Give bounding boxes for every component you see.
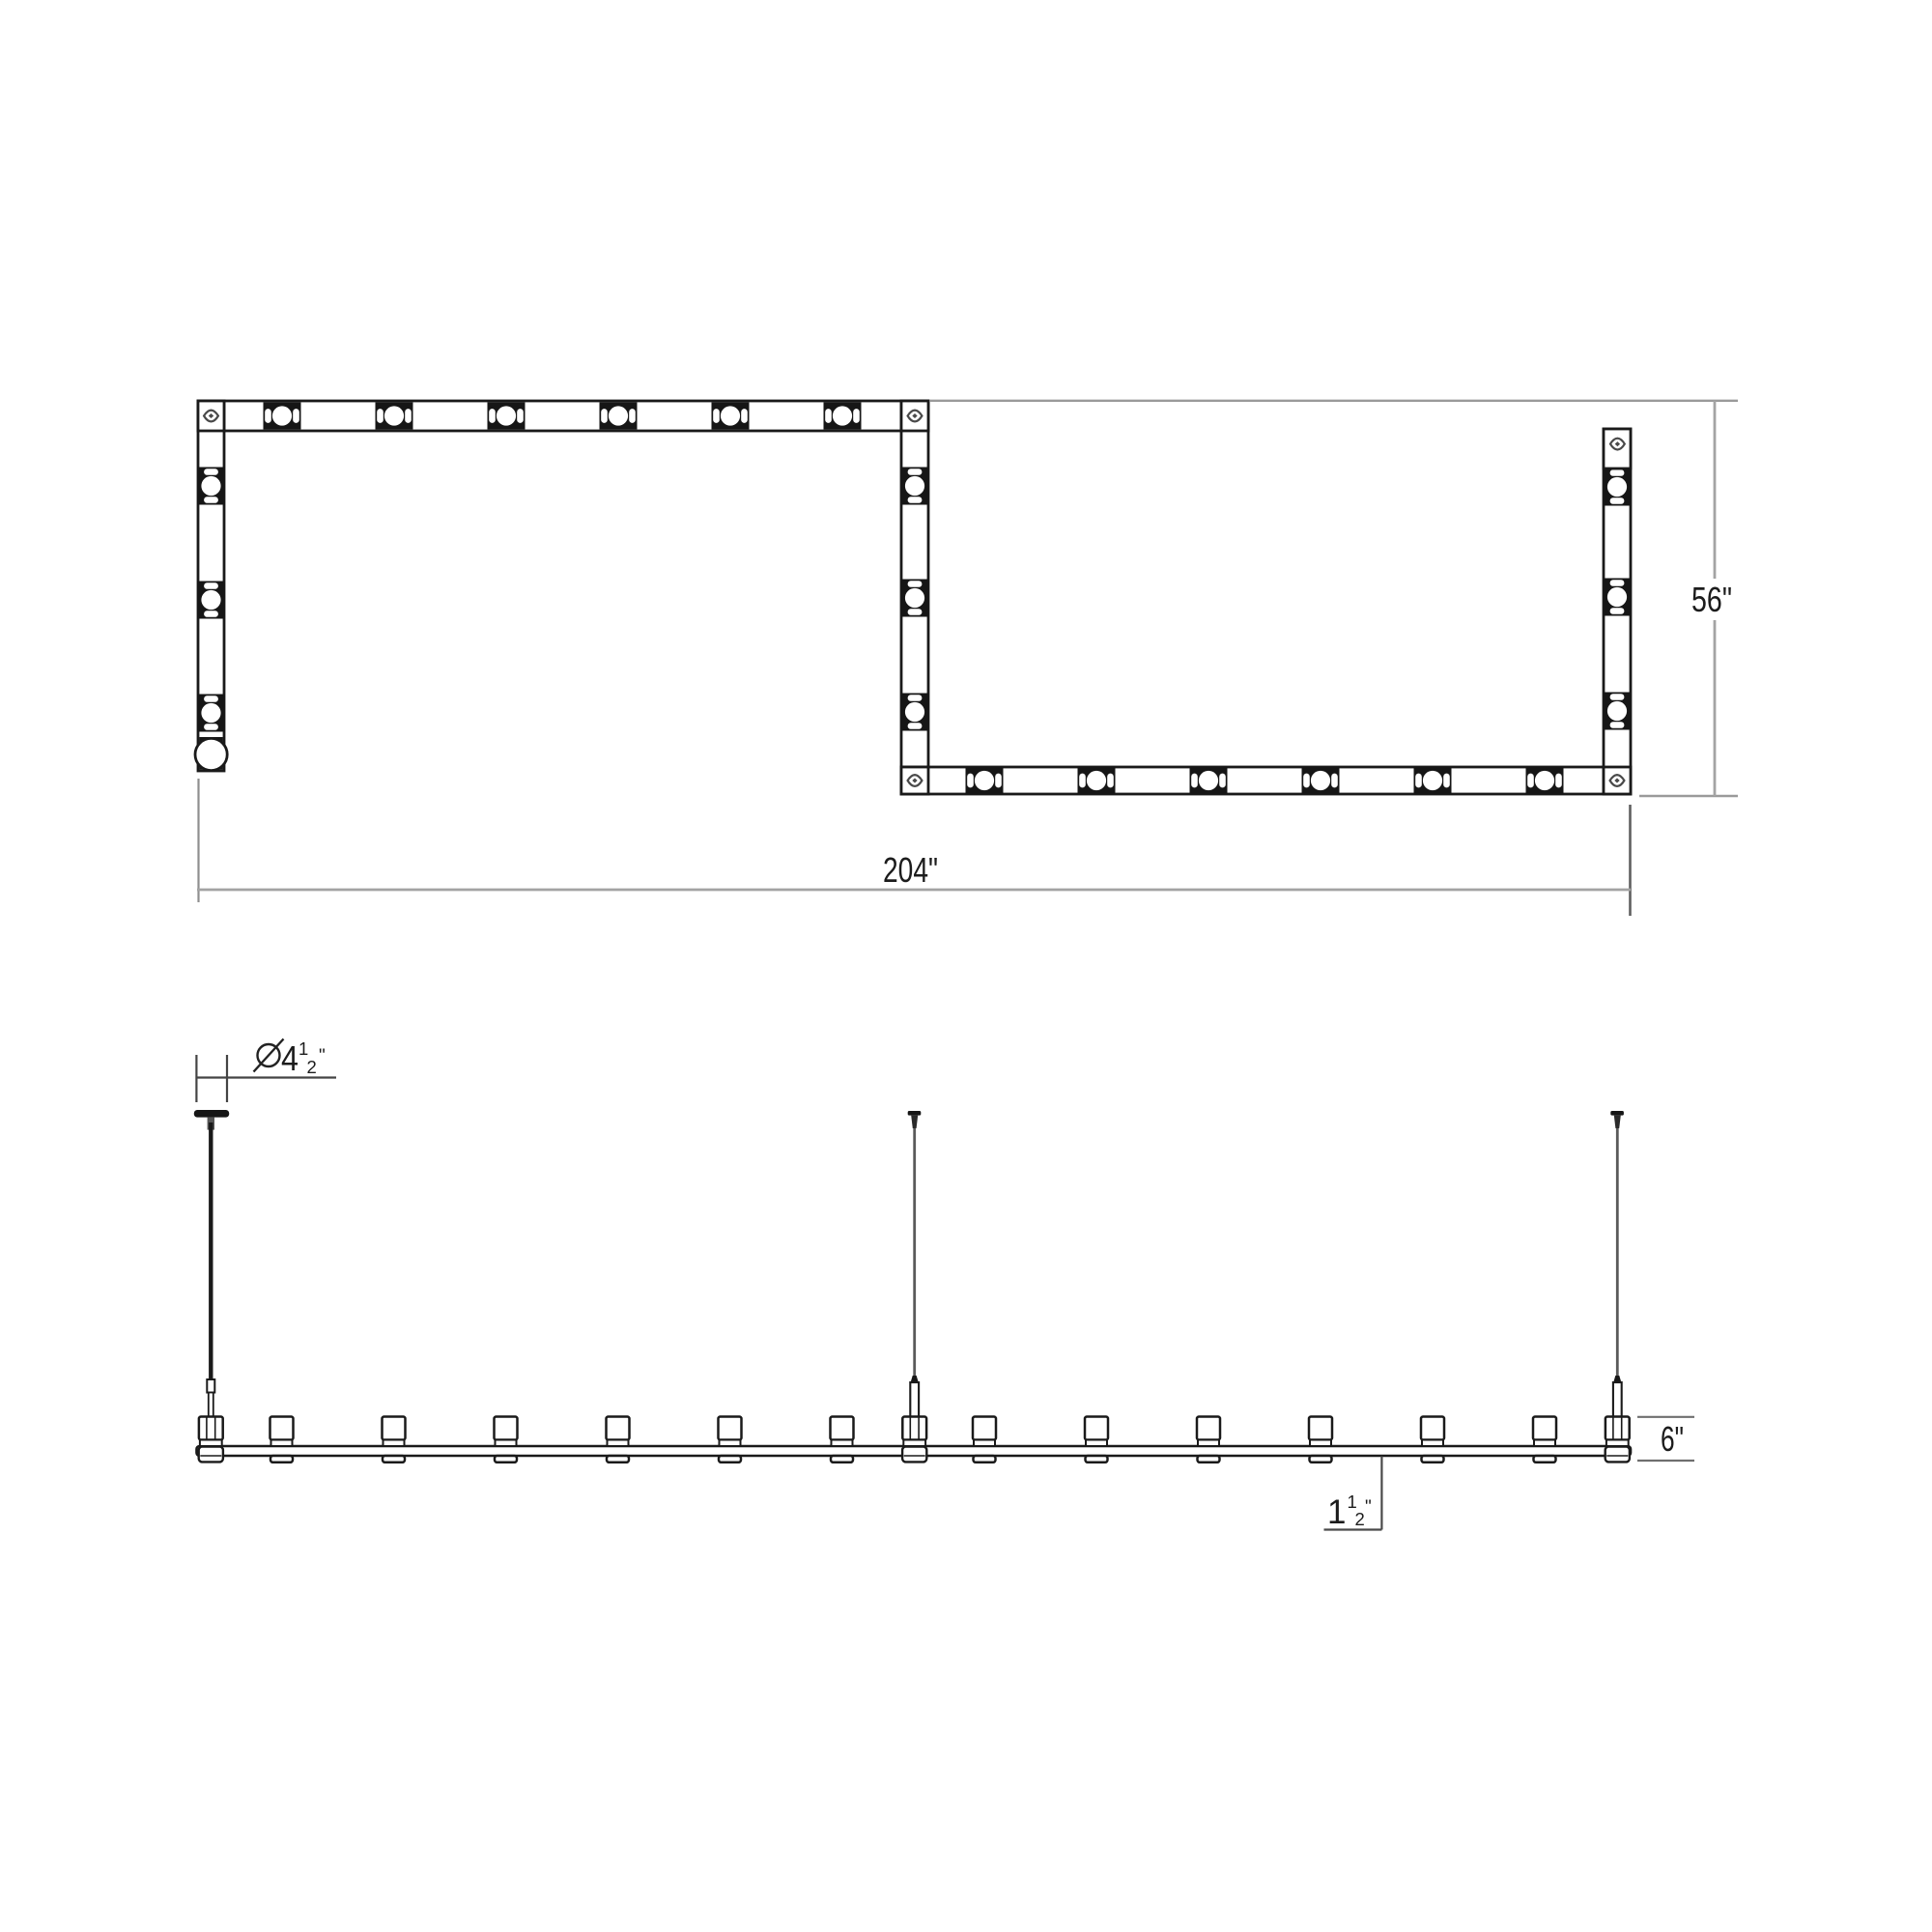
svg-text:4: 4 [281,1038,298,1078]
svg-text:6": 6" [1661,1419,1684,1459]
svg-text:56": 56" [1691,580,1732,619]
svg-text:2: 2 [307,1057,317,1077]
svg-text:": " [1365,1497,1372,1518]
svg-text:1: 1 [1327,1493,1346,1531]
svg-text:204": 204" [883,850,938,890]
svg-text:2: 2 [1355,1509,1365,1529]
svg-text:1: 1 [298,1038,308,1059]
svg-text:": " [319,1046,326,1066]
